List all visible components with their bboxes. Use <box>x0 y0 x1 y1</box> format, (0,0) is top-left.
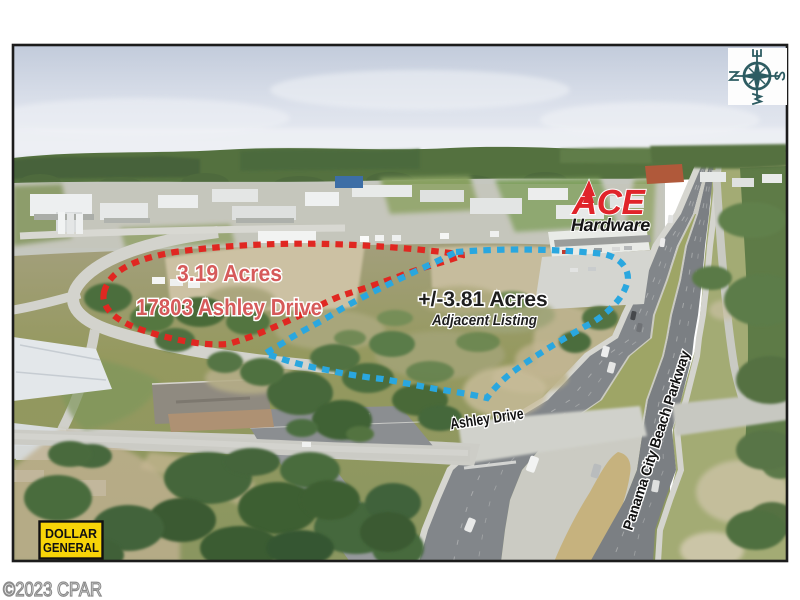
svg-text:DOLLAR: DOLLAR <box>45 526 98 541</box>
svg-text:+/-3.81 Acres: +/-3.81 Acres <box>418 288 547 311</box>
svg-text:©2023 CPAR: ©2023 CPAR <box>3 579 102 600</box>
svg-text:Hardware: Hardware <box>571 215 650 235</box>
svg-text:GENERAL: GENERAL <box>43 540 99 555</box>
svg-text:Adjacent Listing: Adjacent Listing <box>431 312 537 329</box>
svg-text:17803 Ashley Drive: 17803 Ashley Drive <box>136 294 322 320</box>
svg-text:3.19 Acres: 3.19 Acres <box>177 260 282 286</box>
